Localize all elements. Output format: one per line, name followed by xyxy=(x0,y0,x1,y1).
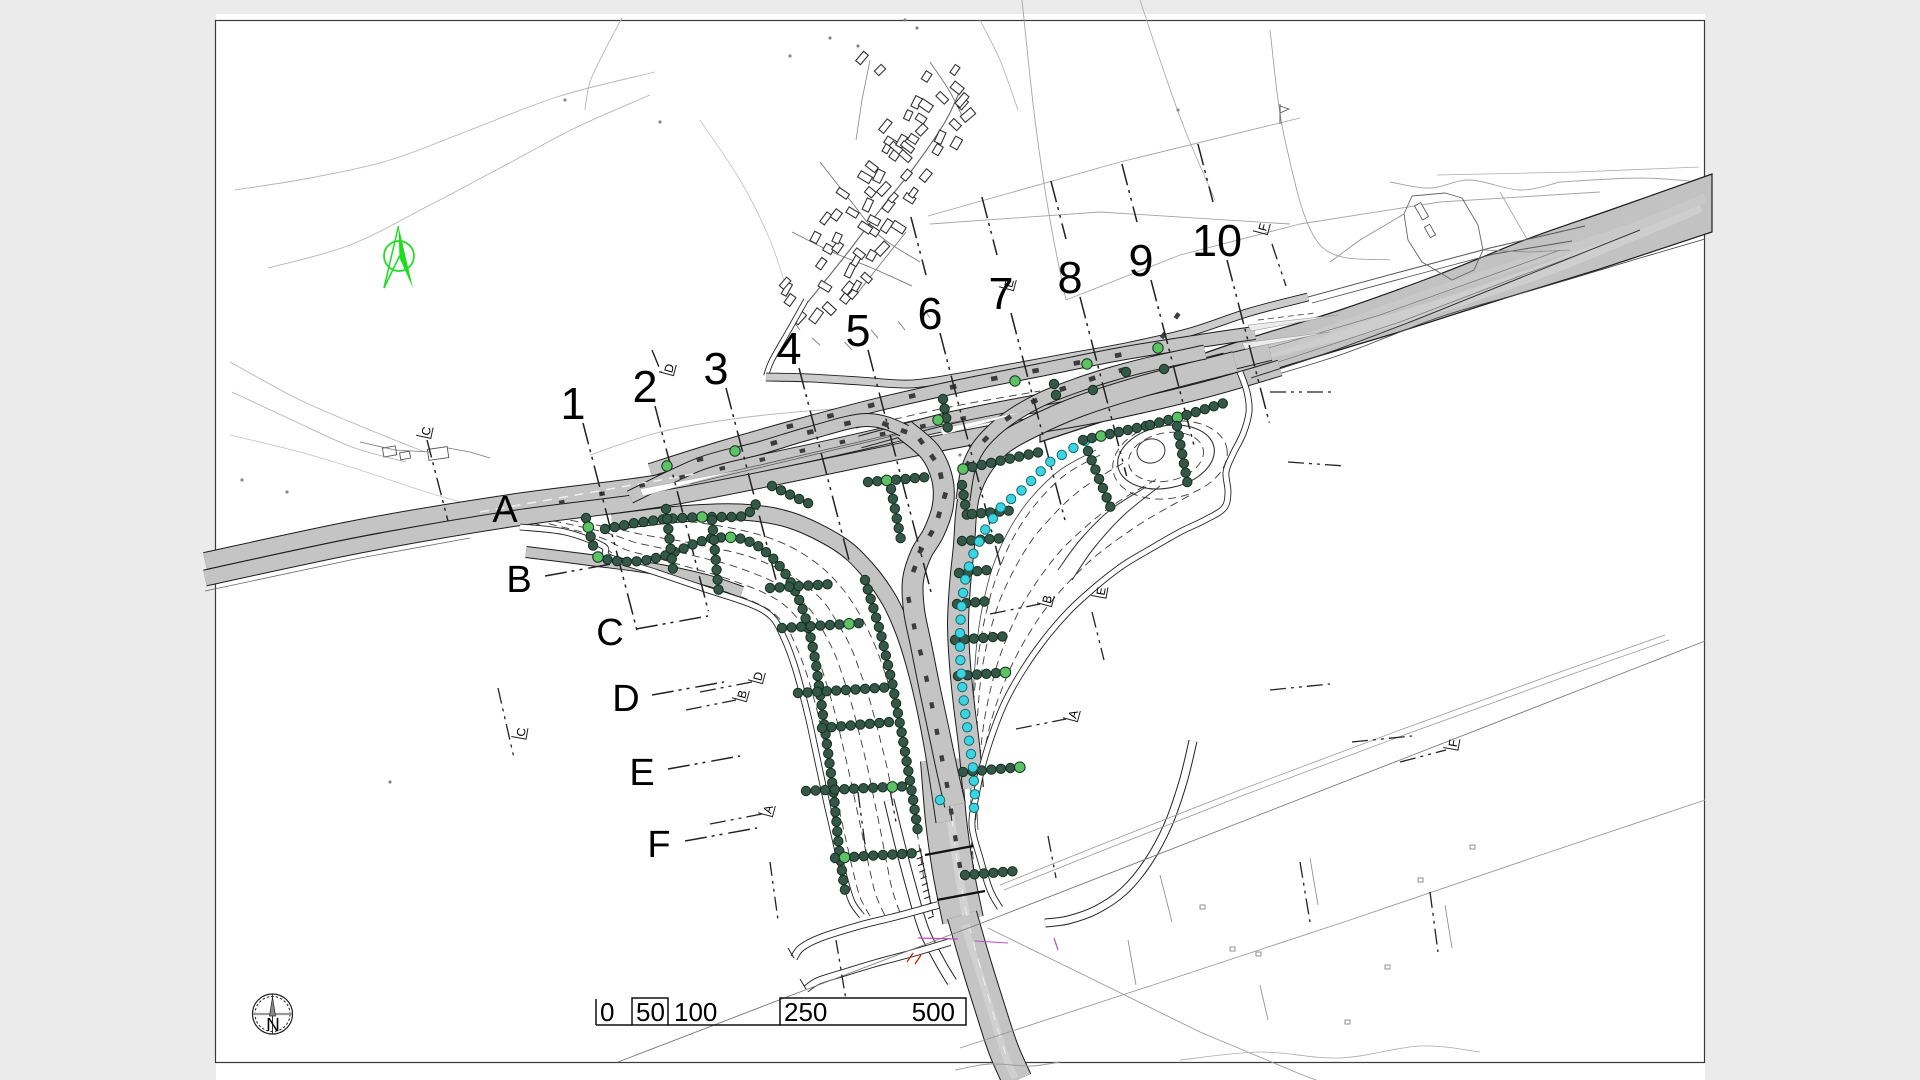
svg-text:7: 7 xyxy=(988,268,1013,319)
svg-text:10: 10 xyxy=(1192,215,1242,266)
svg-text:250: 250 xyxy=(784,997,827,1027)
svg-text:9: 9 xyxy=(1128,235,1153,286)
svg-text:2: 2 xyxy=(632,361,657,412)
svg-text:3: 3 xyxy=(703,343,728,394)
svg-text:6: 6 xyxy=(917,288,942,339)
svg-text:E: E xyxy=(629,752,654,794)
svg-text:F: F xyxy=(647,824,670,866)
svg-text:B: B xyxy=(506,559,531,601)
svg-text:1: 1 xyxy=(560,378,585,429)
svg-text:C: C xyxy=(596,612,623,654)
svg-text:A: A xyxy=(492,489,518,531)
svg-text:4: 4 xyxy=(776,323,801,374)
svg-text:5: 5 xyxy=(845,305,870,356)
svg-text:0: 0 xyxy=(600,997,614,1027)
svg-text:100: 100 xyxy=(674,997,717,1027)
svg-text:D: D xyxy=(612,678,639,720)
svg-text:50: 50 xyxy=(636,997,665,1027)
svg-text:500: 500 xyxy=(912,997,955,1027)
svg-text:N: N xyxy=(266,1015,280,1036)
svg-text:8: 8 xyxy=(1057,252,1082,303)
